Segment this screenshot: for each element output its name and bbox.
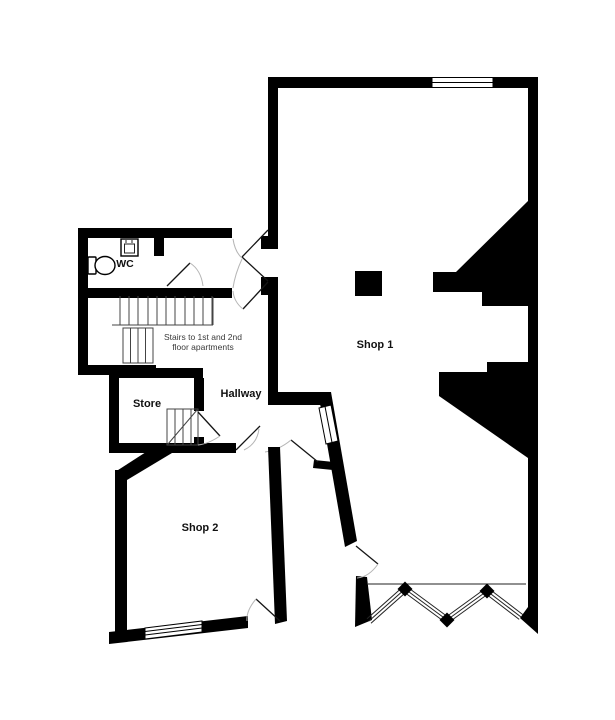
shop2-right-wall xyxy=(268,447,287,624)
door-arc xyxy=(357,564,378,578)
shop1-top-wall-left xyxy=(268,77,432,88)
wc-left-wall xyxy=(78,228,88,298)
shop1-door-jamb-upper xyxy=(261,236,278,249)
store-room: Store xyxy=(109,368,236,453)
store-door-leaf xyxy=(198,412,220,436)
wc-door-leaf xyxy=(167,263,190,286)
shop2-left-wall xyxy=(115,470,127,642)
shop1-top-window xyxy=(432,78,493,88)
store-room-label: Store xyxy=(133,398,161,410)
store-left-wall xyxy=(109,368,119,453)
wc-partition-wall xyxy=(154,238,164,256)
shopfront-zigzag-windows xyxy=(367,582,526,628)
winder-stairs xyxy=(167,409,220,445)
wc-bottom-wall xyxy=(78,288,232,298)
shop1-left-wall-lower xyxy=(268,277,278,405)
stairs-note-line1: Stairs to 1st and 2nd xyxy=(164,332,242,342)
shop1-left-wall-upper xyxy=(268,77,278,248)
shop1-right-feature-upper xyxy=(433,201,528,306)
shopfront-door xyxy=(356,546,378,578)
hallway-bottom-doors xyxy=(236,426,334,470)
door-leaf xyxy=(356,546,378,564)
shop2-room-label: Shop 2 xyxy=(182,522,219,534)
sink-icon xyxy=(121,239,138,256)
door-leaf xyxy=(243,282,268,309)
stair-left-wall xyxy=(78,288,88,375)
wc-room-label: WC xyxy=(116,258,134,270)
shop1-right-feature-lower xyxy=(439,362,528,458)
shop1-diagonal-window xyxy=(319,405,338,444)
stair-treads-lower xyxy=(123,328,153,363)
shop2-walls xyxy=(109,443,287,644)
floor-plan: WC Stairs to 1st and 2nd floor ap xyxy=(0,0,615,720)
toilet-icon xyxy=(88,257,115,275)
zigzag-mullion xyxy=(440,613,455,628)
shop1-column xyxy=(355,271,382,296)
shop1-room-label: Shop 1 xyxy=(357,339,394,351)
shop1-right-wall xyxy=(520,77,538,634)
store-right-wall-upper xyxy=(194,378,204,411)
door-arc xyxy=(233,291,243,309)
wc-top-wall xyxy=(78,228,232,238)
door-leaf xyxy=(291,440,318,462)
wc-door-arc xyxy=(190,263,203,286)
door-arc xyxy=(233,259,242,288)
hallway-label: Hallway xyxy=(221,388,263,400)
store-top-wall xyxy=(110,368,203,378)
shop1-walls xyxy=(261,77,538,634)
door-arc xyxy=(247,599,256,621)
stair-treads-upper xyxy=(112,296,213,325)
stairs-note-line2: floor apartments xyxy=(172,342,233,352)
zigzag-mullion xyxy=(480,584,495,599)
door-leaf xyxy=(242,257,268,281)
wc-room: WC xyxy=(78,228,232,298)
stairwell: Stairs to 1st and 2nd floor apartments xyxy=(78,288,242,375)
floor-plan-page: WC Stairs to 1st and 2nd floor ap xyxy=(0,0,615,720)
door-arc xyxy=(233,239,242,258)
